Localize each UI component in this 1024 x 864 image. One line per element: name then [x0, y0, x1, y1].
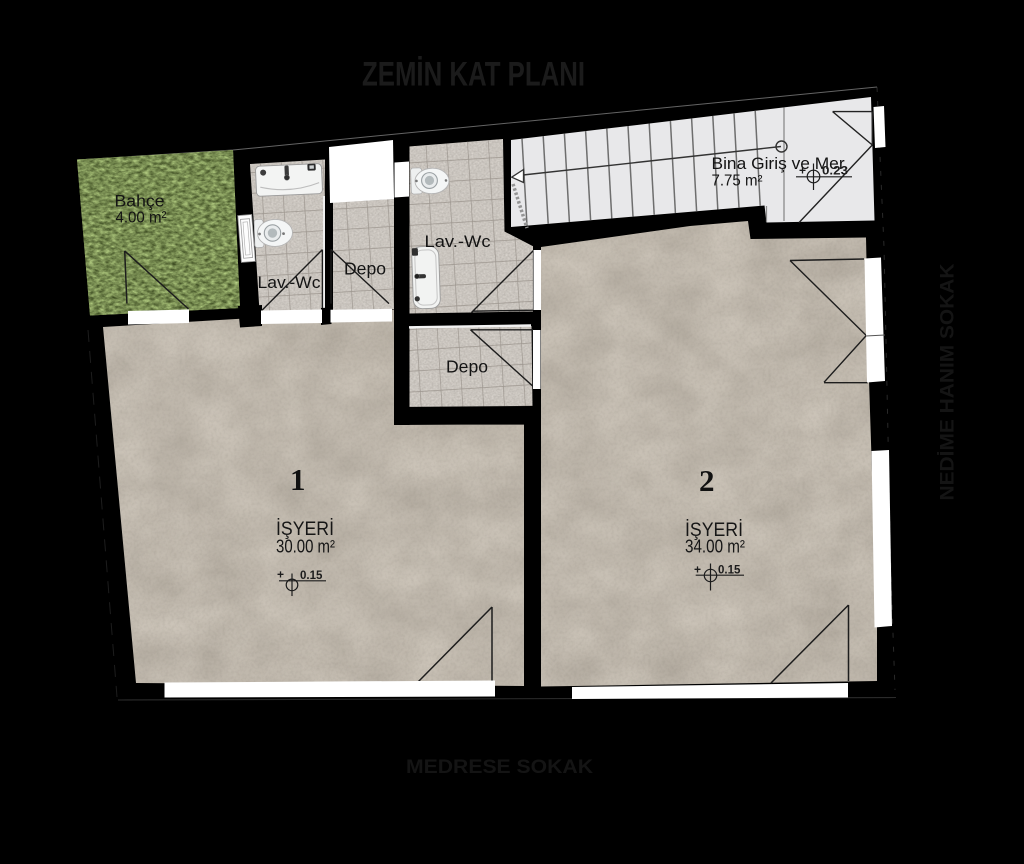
- svg-text:4.00 m²: 4.00 m²: [116, 210, 168, 227]
- svg-text:+: +: [277, 568, 284, 582]
- svg-text:0.23: 0.23: [822, 166, 848, 178]
- svg-text:7.75 m²: 7.75 m²: [712, 173, 763, 190]
- svg-text:0.15: 0.15: [718, 565, 741, 577]
- svg-text:Depo: Depo: [344, 259, 386, 279]
- svg-text:ZEMİN KAT PLANI: ZEMİN KAT PLANI: [362, 55, 585, 93]
- svg-text:NEDİME HANIM SOKAK: NEDİME HANIM SOKAK: [938, 263, 959, 500]
- svg-text:30.00 m²: 30.00 m²: [276, 537, 335, 557]
- svg-text:Lav.-Wc: Lav.-Wc: [258, 273, 322, 292]
- svg-text:+: +: [799, 164, 806, 178]
- svg-text:2: 2: [699, 463, 715, 498]
- svg-text:+: +: [694, 563, 701, 577]
- svg-text:MEDRESE SOKAK: MEDRESE SOKAK: [406, 757, 593, 778]
- svg-text:Lav.-Wc: Lav.-Wc: [425, 232, 492, 251]
- svg-text:1: 1: [290, 462, 306, 497]
- svg-text:Depo: Depo: [446, 357, 488, 377]
- svg-text:Bahçe: Bahçe: [115, 192, 165, 211]
- svg-text:0.15: 0.15: [300, 570, 323, 582]
- svg-text:34.00 m²: 34.00 m²: [685, 537, 745, 557]
